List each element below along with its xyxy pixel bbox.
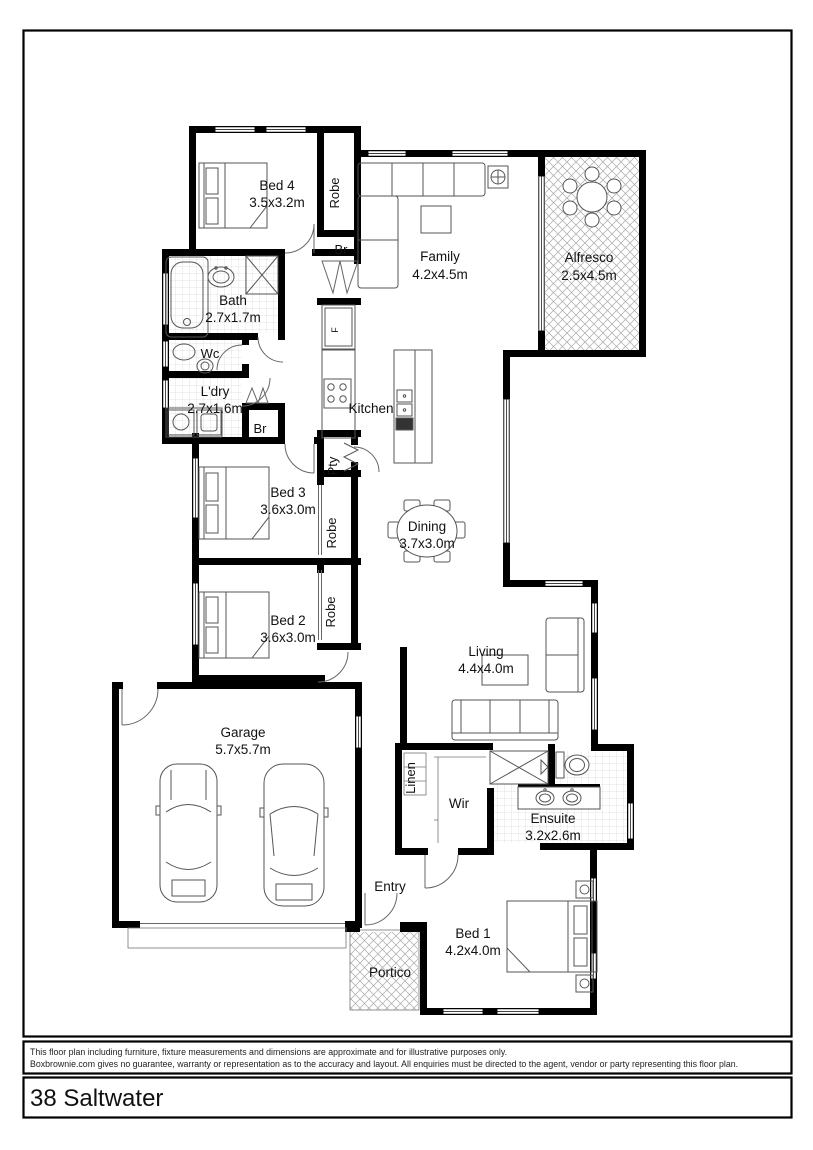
kitchen-island	[394, 350, 432, 463]
page-title: 38 Saltwater	[30, 1085, 163, 1112]
room-label-bed3: Bed 3	[270, 485, 305, 500]
window	[356, 716, 361, 748]
room-label-family: Family	[420, 249, 460, 264]
room-dims-living: 4.4x4.0m	[458, 661, 514, 676]
disclaimer-box: This floor plan including furniture, fix…	[24, 1042, 792, 1074]
window	[193, 583, 198, 645]
room-label-pty: Pty	[325, 456, 340, 475]
bifold-door	[322, 261, 358, 293]
window	[497, 1009, 539, 1014]
bed1-door	[425, 855, 458, 888]
room-label-bed4: Bed 4	[259, 178, 295, 193]
room-dims-garage: 5.7x5.7m	[215, 742, 271, 757]
car-icon	[260, 764, 328, 906]
window	[368, 151, 406, 156]
bed-icon	[199, 467, 269, 539]
room-label-ensuite: Ensuite	[530, 811, 575, 826]
window	[193, 458, 198, 518]
room-label-wc: Wc	[201, 346, 220, 361]
room-dims-alfresco: 2.5x4.5m	[561, 268, 617, 283]
room-label-br2: Br	[254, 421, 268, 436]
title-box: 38 Saltwater	[24, 1078, 792, 1118]
room-label-linen: Linen	[403, 762, 418, 794]
car-icon	[156, 764, 221, 902]
coffee-table-icon	[421, 206, 451, 233]
garage-door	[122, 689, 158, 725]
shower-icon	[490, 751, 548, 784]
floor-plan: Bed 4 3.5x3.2m Robe Br Family 4.2x4.5m A…	[0, 0, 813, 1150]
window	[545, 581, 583, 586]
window	[266, 127, 306, 132]
front-door	[365, 893, 397, 925]
window	[592, 603, 597, 633]
room-label-portico: Portico	[369, 965, 411, 980]
room-dims-dining: 3.7x3.0m	[399, 536, 455, 551]
room-dims-bed3: 3.6x3.0m	[260, 502, 316, 517]
door-openings	[123, 681, 157, 690]
sink-icon	[397, 390, 412, 402]
window	[628, 803, 633, 839]
room-label-entry: Entry	[374, 879, 406, 894]
room-label-ldry: L'dry	[201, 384, 230, 399]
bed4-door	[285, 224, 314, 253]
bed-icon	[199, 592, 269, 658]
room-dims-bed2: 3.6x3.0m	[260, 630, 316, 645]
room-label-alfresco: Alfresco	[565, 250, 614, 265]
room-label-wir: Wir	[449, 796, 470, 811]
room-label-robe2: Robe	[323, 596, 338, 627]
room-dims-bath: 2.7x1.7m	[205, 310, 261, 325]
room-label-kitchen: Kitchen	[348, 401, 393, 416]
bath-door	[258, 337, 283, 362]
room-label-living: Living	[468, 644, 503, 659]
driveway-apron	[128, 928, 346, 948]
room-dims-bed4: 3.5x3.2m	[249, 195, 305, 210]
vanity-icon	[518, 787, 600, 809]
loveseat-icon	[546, 618, 584, 692]
sliding-door	[539, 176, 544, 331]
room-label-br4: Br	[335, 242, 349, 257]
room-label-robe3: Robe	[324, 517, 339, 548]
room-dims-bed1: 4.2x4.0m	[445, 943, 501, 958]
window	[504, 399, 509, 543]
kitchen-bench	[322, 350, 355, 438]
room-label-bath: Bath	[219, 293, 247, 308]
disclaimer-line-1: This floor plan including furniture, fix…	[30, 1047, 507, 1057]
window	[163, 380, 168, 408]
window	[452, 151, 508, 156]
room-dims-family: 4.2x4.5m	[412, 267, 468, 282]
stove-icon	[324, 379, 351, 408]
window	[163, 341, 168, 367]
dishwasher-icon	[396, 418, 413, 430]
ceiling-fan-icon	[488, 166, 508, 188]
room-dims-ensuite: 3.2x2.6m	[525, 828, 581, 843]
bed-icon	[507, 881, 597, 992]
room-dims-ldry: 2.7x1.6m	[187, 401, 243, 416]
window	[215, 127, 255, 132]
fridge-icon	[322, 305, 355, 349]
window	[592, 678, 597, 730]
room-label-robe4: Robe	[327, 177, 342, 208]
room-label-bed1: Bed 1	[455, 926, 490, 941]
bed3-door	[285, 444, 314, 473]
fridge-letter: F	[330, 327, 340, 333]
window	[443, 1009, 483, 1014]
room-label-dining: Dining	[408, 519, 446, 534]
room-label-bed2: Bed 2	[270, 613, 305, 628]
bifold-door	[246, 388, 268, 403]
sofa-icon	[452, 700, 558, 740]
room-label-garage: Garage	[220, 725, 265, 740]
disclaimer-line-2: Boxbrownie.com gives no guarantee, warra…	[30, 1059, 738, 1069]
